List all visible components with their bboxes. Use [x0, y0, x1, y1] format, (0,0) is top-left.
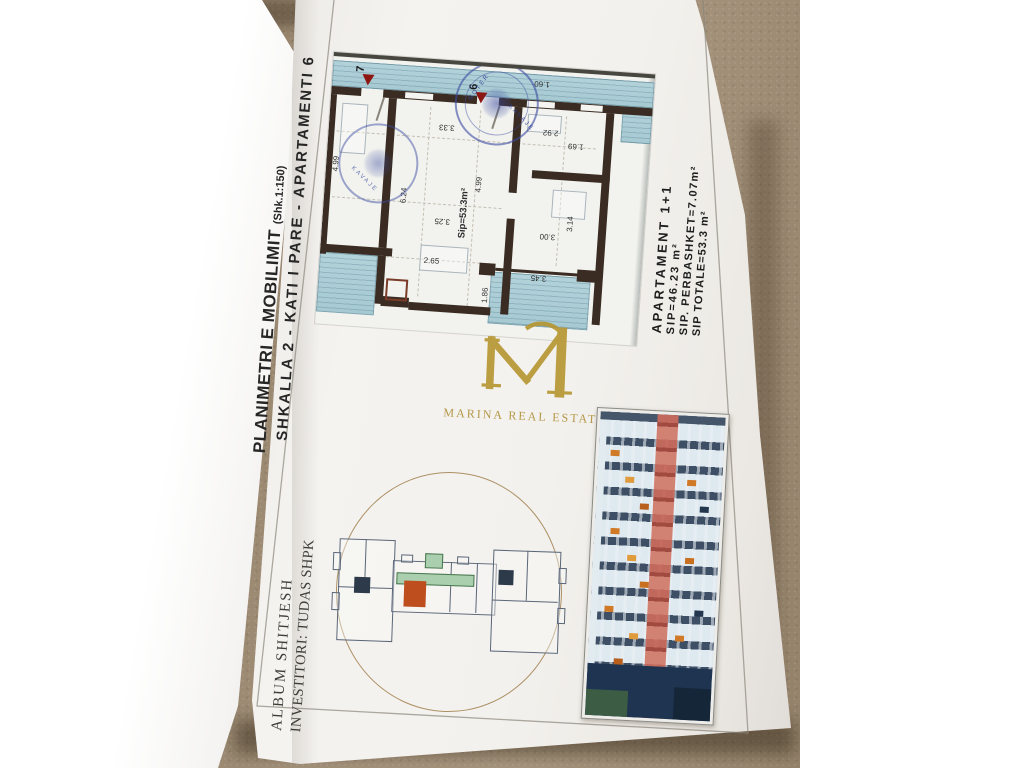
dimension-label: 1.60 [534, 79, 550, 89]
stair-core [498, 570, 514, 586]
wall-segment [532, 170, 610, 183]
dimension-label: 2.65 [423, 256, 439, 266]
balcony-bottom-left [316, 252, 378, 316]
dimension-label: 4.99 [474, 177, 484, 193]
lit-window [685, 558, 694, 564]
lit-window [610, 450, 619, 456]
area-label: Sip=53.3m² [456, 188, 470, 239]
floor-plan: 7 6 4.99 6.24 4.99 3.14 3.33 2.92 1.69 1… [315, 52, 655, 346]
lit-window [614, 658, 623, 664]
wing-bump [331, 592, 340, 610]
stair-highlight [425, 553, 444, 569]
dimension-label: 1.69 [568, 142, 584, 152]
lit-window [640, 503, 649, 509]
dimension-label: 1.86 [480, 287, 490, 303]
dimension-label: 3.33 [439, 123, 455, 133]
dark-window [700, 507, 709, 513]
wall-post [577, 270, 600, 284]
base-shadow [673, 687, 712, 721]
wing-bump [457, 556, 469, 564]
wing-bump [558, 568, 567, 584]
dimension-label: 3.25 [434, 216, 450, 226]
logo-monogram-icon [471, 318, 584, 405]
lit-window [610, 528, 619, 534]
selected-apartment-highlight [403, 580, 426, 607]
dark-window [694, 610, 703, 616]
dimension-label: 3.14 [565, 216, 575, 232]
unit-7-label: 7 [355, 65, 367, 72]
door-leaf [376, 98, 385, 121]
key-plan [326, 464, 570, 718]
building-facade [585, 411, 726, 721]
lit-window [604, 606, 613, 612]
wing-bump [557, 608, 566, 624]
stair-core [354, 577, 371, 594]
photo-of-document: PLANIMETRI E MOBILIMIT (Shk.1:150) SHKAL… [0, 0, 800, 768]
wall-segment [592, 113, 615, 325]
wall-segment [408, 302, 490, 316]
screenshot-stage: PLANIMETRI E MOBILIMIT (Shk.1:150) SHKAL… [0, 0, 1024, 768]
lit-window [627, 555, 636, 561]
unit-7-arrow-icon [362, 74, 375, 86]
lit-window [675, 635, 684, 641]
building-rendering [581, 407, 730, 726]
lit-window [687, 480, 696, 486]
lit-window [640, 581, 649, 587]
greenery [585, 689, 628, 717]
dimension-label: 2.92 [543, 128, 559, 138]
wall-post [479, 263, 496, 276]
column-detail [385, 278, 408, 301]
title-scale-note: (Shk.1:150) [272, 165, 288, 224]
agency-logo: MARINA REAL ESTATE [435, 316, 619, 426]
dimension-label: 3.45 [530, 273, 546, 283]
lit-window [625, 477, 634, 483]
guide-line [332, 196, 502, 209]
wing-bump [333, 552, 342, 570]
wing-bump [401, 554, 413, 562]
dimension-label: 3.00 [539, 232, 555, 242]
lit-window [629, 633, 638, 639]
